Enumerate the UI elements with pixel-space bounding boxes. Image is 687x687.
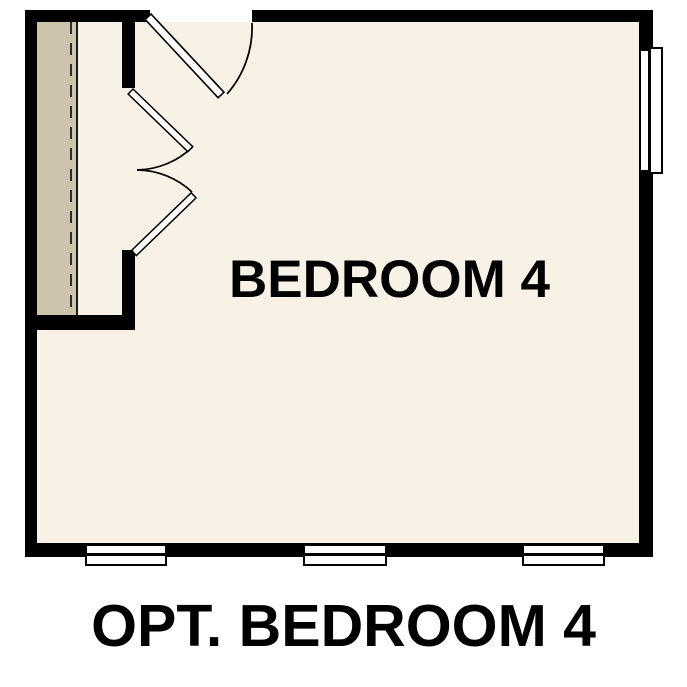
wall-top-left-segment (25, 10, 150, 22)
wall-left (25, 10, 37, 557)
window-right-outer-pane (649, 47, 663, 174)
window-bottom-2-outer-pane (303, 554, 387, 566)
window-bottom-3-outer-pane (522, 554, 605, 566)
floorplan-canvas: BEDROOM 4 OPT. BEDROOM 4 (0, 0, 687, 687)
closet-shelf-edge-line (76, 22, 78, 315)
closet-wall-bottom (37, 315, 135, 330)
window-bottom-1-outer-pane (85, 554, 167, 566)
plan-caption: OPT. BEDROOM 4 (0, 597, 687, 656)
closet-wall-stub-top (122, 22, 135, 88)
room-label: BEDROOM 4 (229, 253, 550, 306)
closet-shelf-shading (37, 22, 77, 315)
wall-top-right-segment (252, 10, 653, 22)
